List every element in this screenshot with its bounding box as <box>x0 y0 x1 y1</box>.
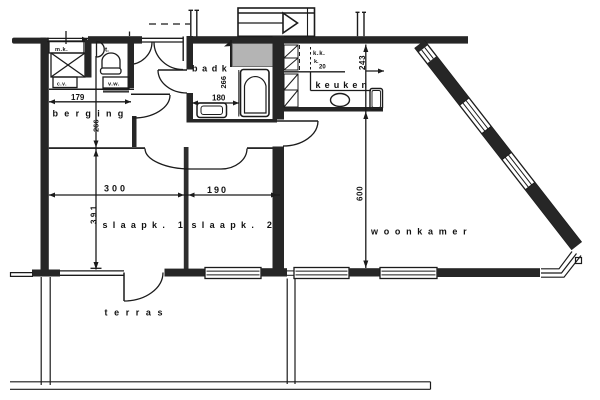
svg-text:20: 20 <box>319 65 326 71</box>
svg-text:badk: badk <box>192 64 231 74</box>
svg-text:terras: terras <box>105 308 170 318</box>
svg-text:m.k.: m.k. <box>55 47 68 53</box>
svg-text:179: 179 <box>71 93 85 102</box>
svg-text:k.k.: k.k. <box>313 51 325 57</box>
svg-text:berging: berging <box>53 109 130 119</box>
svg-text:slaapk. 2: slaapk. 2 <box>192 220 278 230</box>
svg-text:v.w.: v.w. <box>108 82 120 88</box>
svg-text:600: 600 <box>356 186 365 201</box>
svg-text:woonkamer: woonkamer <box>370 227 472 237</box>
svg-text:180: 180 <box>212 94 226 103</box>
svg-text:keuken: keuken <box>316 80 372 90</box>
svg-text:391: 391 <box>90 203 99 224</box>
svg-text:c.v.: c.v. <box>57 82 67 88</box>
svg-text:266: 266 <box>92 119 101 132</box>
svg-text:190: 190 <box>207 185 228 195</box>
svg-text:t.: t. <box>105 47 109 54</box>
svg-text:300: 300 <box>104 184 128 194</box>
svg-text:slaapk. 1: slaapk. 1 <box>103 220 189 230</box>
svg-text:266: 266 <box>219 76 228 89</box>
